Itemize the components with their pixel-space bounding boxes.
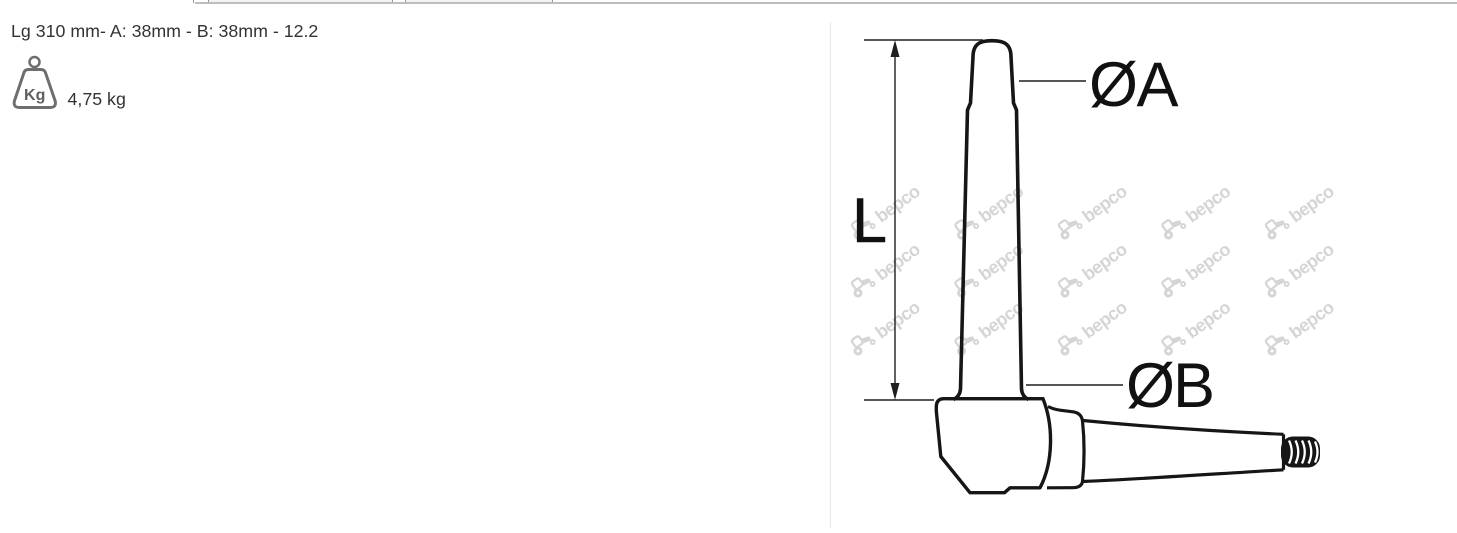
svg-text:ØB: ØB [1126, 351, 1213, 421]
svg-text:Kg: Kg [24, 87, 45, 104]
svg-text:L: L [852, 186, 887, 256]
svg-text:ØA: ØA [1089, 50, 1179, 120]
